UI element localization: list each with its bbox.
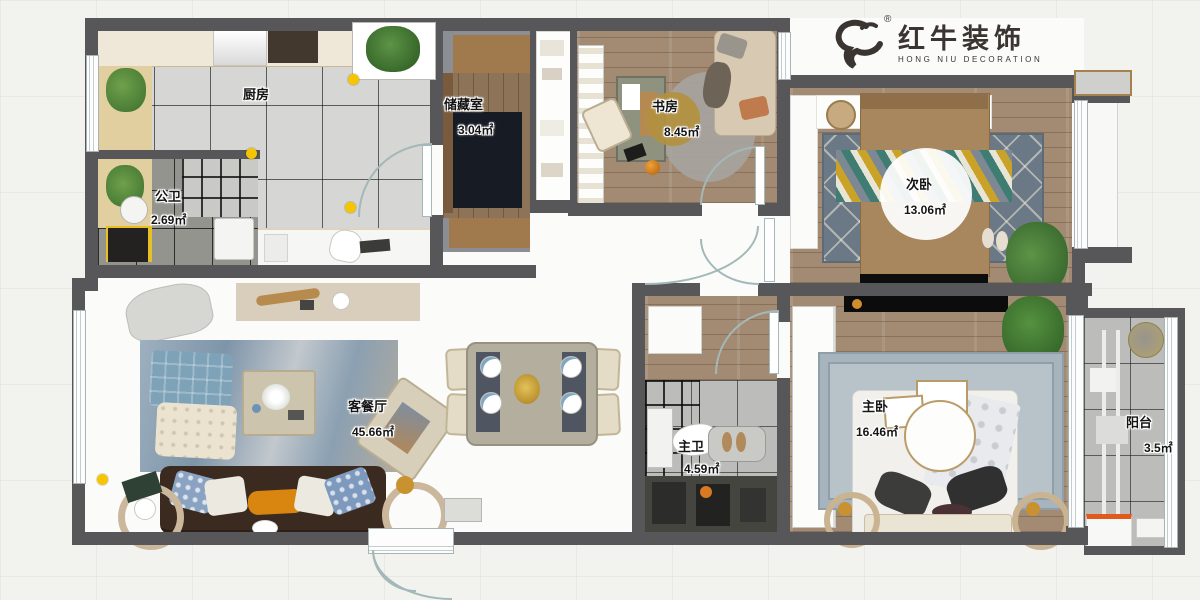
room-name: 公卫 bbox=[155, 186, 186, 205]
entry-door-arc-inner bbox=[372, 550, 416, 592]
deco-plate bbox=[332, 292, 350, 310]
room-label-public-bath: 公卫 2.69㎡ bbox=[155, 186, 186, 228]
deco-dark-item bbox=[300, 300, 314, 310]
room-area: 4.59㎡ bbox=[684, 460, 719, 477]
room-label-balcony: 阳台 3.5㎡ bbox=[1126, 412, 1173, 456]
balcony-box bbox=[1090, 368, 1116, 392]
room-name: 次卧 bbox=[906, 174, 946, 193]
gold-bowl bbox=[396, 476, 414, 494]
bedroom-hall-door-leaf bbox=[764, 218, 775, 282]
room-name: 主卫 bbox=[678, 436, 719, 455]
place-setting bbox=[480, 356, 502, 378]
gold-deco bbox=[852, 299, 862, 309]
table-book bbox=[288, 410, 304, 420]
wall bbox=[632, 283, 645, 545]
kitchen-door-leaf bbox=[422, 145, 432, 217]
room-area: 3.04㎡ bbox=[458, 121, 493, 138]
chaise-blanket bbox=[149, 350, 234, 410]
room-name: 厨房 bbox=[243, 87, 269, 102]
entry-bench bbox=[444, 498, 482, 522]
washer bbox=[214, 218, 254, 260]
window bbox=[73, 310, 86, 484]
place-setting bbox=[560, 356, 582, 378]
marker-dot bbox=[345, 202, 356, 213]
pedestal-sink bbox=[120, 196, 148, 224]
room-name: 储藏室 bbox=[444, 94, 493, 113]
slippers bbox=[722, 432, 732, 452]
nightstand-table bbox=[826, 100, 856, 130]
shower-glass-grid bbox=[182, 155, 258, 217]
wall bbox=[72, 532, 372, 545]
laundry-item bbox=[264, 234, 288, 262]
master-tv bbox=[844, 296, 1008, 312]
bull-icon bbox=[832, 18, 888, 70]
wall bbox=[85, 150, 260, 159]
brand-name: 红牛装饰 bbox=[898, 24, 1042, 54]
room-name: 书房 bbox=[652, 96, 699, 115]
brand-subtitle: HONG NIU DECORATION bbox=[898, 55, 1042, 64]
storage-cabinet-bottom bbox=[443, 218, 530, 252]
wall bbox=[758, 283, 1092, 296]
floor-plan-canvas: ® 红牛装饰 HONG NIU DECORATION bbox=[0, 0, 1200, 600]
storage-cabinet-top bbox=[443, 31, 530, 73]
balcony-wall bbox=[1084, 308, 1185, 317]
marker-dot bbox=[348, 74, 359, 85]
room-area: 16.46㎡ bbox=[856, 423, 898, 440]
wall bbox=[568, 203, 702, 216]
wall bbox=[777, 378, 790, 532]
bedside-lamp bbox=[1026, 502, 1040, 516]
room-area: 13.06㎡ bbox=[904, 201, 946, 218]
wall bbox=[430, 215, 443, 265]
place-setting bbox=[480, 392, 502, 414]
room-area: 8.45㎡ bbox=[664, 123, 699, 140]
window bbox=[778, 32, 791, 80]
wall bbox=[570, 18, 577, 213]
cooktop bbox=[268, 30, 318, 63]
wall bbox=[785, 75, 1085, 88]
room-label-living-dining: 客餐厅 45.66㎡ bbox=[348, 396, 394, 440]
blue-cup bbox=[252, 404, 261, 413]
flower-centerpiece bbox=[262, 384, 290, 410]
marker-dot bbox=[97, 474, 108, 485]
room-label-master-bath: 主卫 4.59㎡ bbox=[678, 436, 719, 477]
bed-headboard bbox=[860, 93, 988, 109]
wall bbox=[1072, 247, 1132, 263]
bay-window-marble bbox=[1086, 100, 1118, 249]
wall bbox=[1066, 526, 1088, 545]
window bbox=[86, 55, 99, 152]
desk-paper bbox=[622, 84, 640, 110]
registered-mark: ® bbox=[884, 14, 891, 25]
sofa-pillow-white bbox=[204, 475, 249, 516]
potted-plant bbox=[106, 68, 146, 112]
room-area: 3.5㎡ bbox=[1144, 439, 1173, 456]
pantry-items bbox=[540, 40, 564, 56]
balcony-box bbox=[1096, 416, 1128, 444]
room-area: 45.66㎡ bbox=[352, 423, 394, 440]
wall bbox=[452, 532, 1084, 545]
bath-sink bbox=[647, 408, 673, 468]
wardrobe-strip bbox=[790, 95, 818, 249]
master-bedroom-door-leaf bbox=[769, 312, 779, 374]
place-setting bbox=[560, 392, 582, 414]
chaise-tufted bbox=[155, 402, 238, 460]
kitchen-mat bbox=[106, 226, 152, 262]
table-flowers bbox=[514, 374, 540, 404]
room-name: 主卧 bbox=[862, 396, 898, 415]
wall bbox=[85, 265, 536, 278]
marker-dot bbox=[246, 148, 257, 159]
room-label-master-bedroom: 主卧 16.46㎡ bbox=[862, 396, 898, 440]
side-table-dish bbox=[134, 498, 156, 520]
orange-basket bbox=[700, 486, 712, 498]
study-door-leaf bbox=[755, 146, 765, 205]
window bbox=[1068, 315, 1084, 528]
room-label-storage: 储藏室 3.04㎡ bbox=[444, 94, 493, 138]
room-label-secondary-bedroom: 次卧 13.06㎡ bbox=[906, 174, 946, 218]
brand-logo: ® 红牛装饰 HONG NIU DECORATION bbox=[832, 16, 1092, 74]
fridge bbox=[213, 30, 267, 66]
bedside-lamp bbox=[838, 502, 852, 516]
slippers bbox=[982, 228, 994, 248]
wall bbox=[530, 18, 536, 213]
round-side-table bbox=[904, 400, 976, 472]
room-label-kitchen: 厨房 bbox=[243, 84, 269, 103]
bay-plant bbox=[366, 26, 420, 72]
bath-closet bbox=[648, 306, 702, 354]
room-name: 阳台 bbox=[1126, 412, 1173, 431]
washing-machines bbox=[652, 482, 686, 524]
room-name: 客餐厅 bbox=[348, 396, 394, 415]
balcony-washer bbox=[1086, 514, 1132, 550]
wall-deco-moss bbox=[1128, 322, 1164, 358]
pantry-shelf bbox=[536, 31, 572, 203]
room-label-study: 书房 8.45㎡ bbox=[652, 96, 699, 140]
bay-window bbox=[1074, 100, 1088, 249]
orange-fruit bbox=[645, 160, 660, 175]
room-area: 2.69㎡ bbox=[151, 211, 186, 228]
